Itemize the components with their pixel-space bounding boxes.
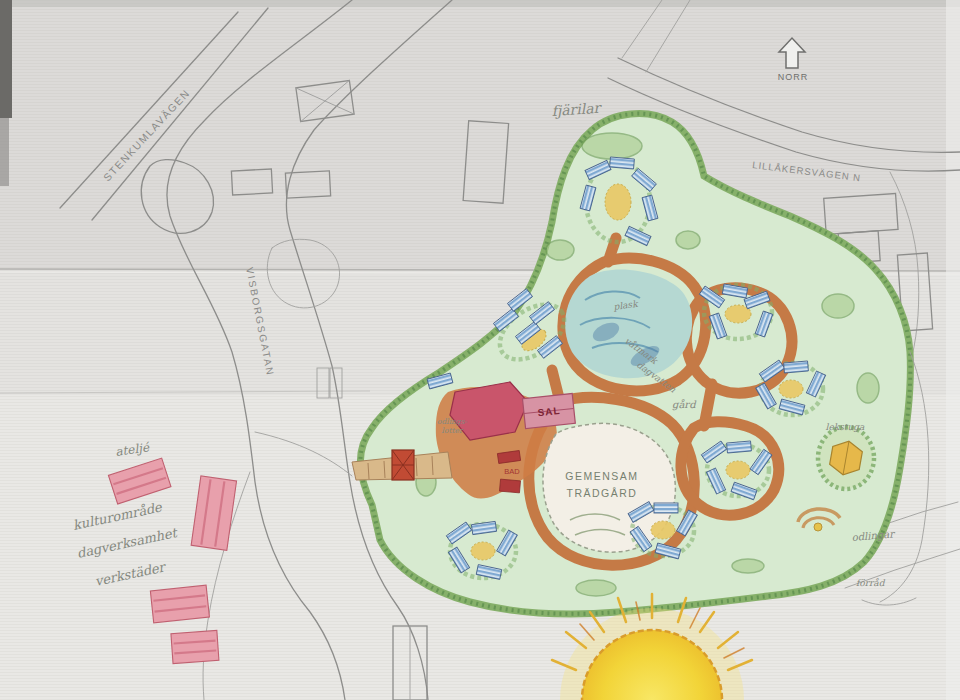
pond	[565, 270, 692, 379]
scan-top-edge	[0, 0, 960, 7]
garden-label-line1: GEMENSAM	[565, 470, 638, 482]
label-gard: gård	[672, 399, 697, 411]
label-lekstuga: lekstuga	[826, 422, 865, 432]
site-plan-drawing: NORR STENKUMLAVÄGEN VISBORGSGATAN LILLÅK…	[0, 0, 960, 700]
scanned-site-plan: NORR STENKUMLAVÄGEN VISBORGSGATAN LILLÅK…	[0, 0, 960, 700]
scan-left-edge	[0, 0, 12, 118]
garden-label-line2: TRÄDGÅRD	[567, 487, 638, 499]
north-label: NORR	[778, 72, 809, 82]
label-odlingslotter-1: odlings-	[437, 417, 468, 426]
label-forrad: förråd	[856, 578, 886, 588]
label-odlingslotter-2: lotter	[442, 426, 464, 435]
label-bad: BAD	[504, 467, 520, 476]
